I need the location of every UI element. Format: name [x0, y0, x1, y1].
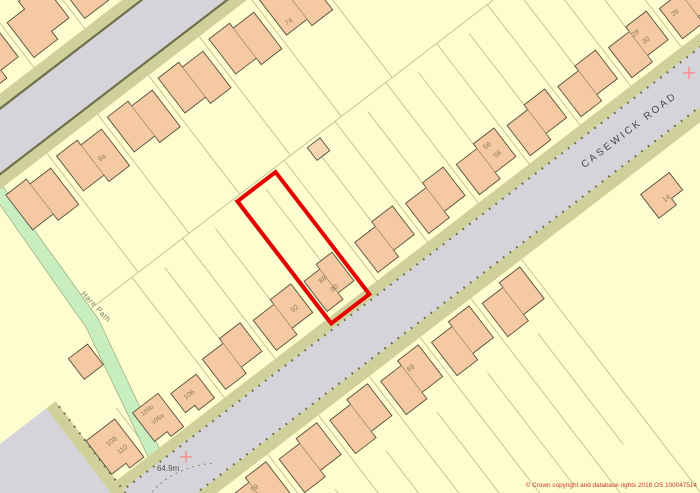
copyright-notice: © Crown copyright and database rights 20… [526, 481, 698, 489]
os-map: CASEWICK ROAD 9a 74 108 110 106b 106a 10… [0, 0, 700, 493]
spot-height-label: 64.9m [157, 464, 180, 473]
map-canvas[interactable]: CASEWICK ROAD 9a 74 108 110 106b 106a 10… [0, 0, 700, 493]
